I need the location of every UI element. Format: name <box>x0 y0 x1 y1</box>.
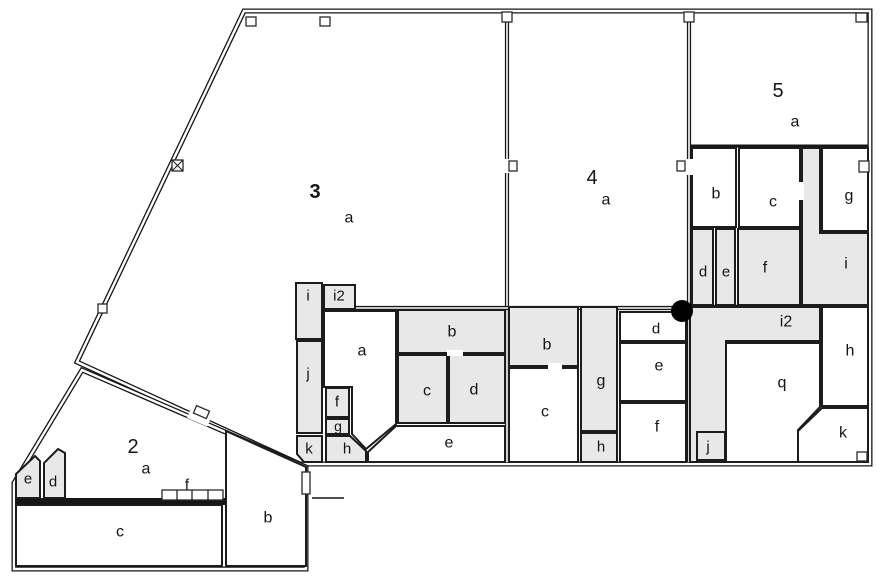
label-room-5j: j <box>705 439 709 456</box>
label-room-3c: c <box>423 383 431 400</box>
label-room-5d: d <box>699 264 707 281</box>
xbox-marker <box>172 160 183 171</box>
label-room-3e: e <box>445 435 454 452</box>
label-room-3g: g <box>334 418 342 434</box>
label-room-4b: b <box>543 337 552 354</box>
section-3-rooms <box>296 283 505 462</box>
window-2b <box>302 472 310 494</box>
label-room-5g: g <box>845 188 854 205</box>
label-section-5-a: a <box>791 114 800 131</box>
door-3b <box>447 350 463 356</box>
window-diagonal <box>98 304 107 313</box>
corner-top-right <box>856 13 867 22</box>
label-room-4h: h <box>597 439 605 456</box>
label-room-5q: q <box>778 375 787 392</box>
room-3j <box>297 341 322 433</box>
label-room-5k: k <box>839 425 848 442</box>
label-room-3a2: a <box>358 343 367 360</box>
label-section-3: 3 <box>309 181 320 203</box>
label-room-2e: e <box>24 471 32 488</box>
junction-top-3-4 <box>502 12 512 22</box>
label-room-5e: e <box>722 264 730 281</box>
room-5j <box>697 432 725 460</box>
door-4b <box>548 363 562 369</box>
label-room-2c: c <box>116 524 124 541</box>
label-room-3i: i <box>306 288 309 305</box>
label-room-4e: e <box>655 358 664 375</box>
room-4f <box>620 403 686 462</box>
room-5f <box>738 229 800 305</box>
corner-bottom-right <box>857 452 867 461</box>
label-room-5f: f <box>763 260 768 277</box>
label-room-4c: c <box>541 404 549 421</box>
label-room-4g: g <box>597 373 606 390</box>
location-marker-dot <box>671 300 693 322</box>
window-right-g <box>859 161 869 172</box>
label-room-5i2: i2 <box>780 314 793 331</box>
label-room-3j: j <box>305 366 309 383</box>
room-4e <box>620 343 686 401</box>
label-section-4: 4 <box>586 167 597 189</box>
door-divider-3-4 <box>502 159 517 173</box>
label-room-4f: f <box>655 419 660 436</box>
label-room-3h: h <box>343 441 351 458</box>
label-room-5i: i <box>844 256 848 273</box>
junction-top-4-5 <box>684 12 694 22</box>
label-room-3i2: i2 <box>333 288 345 305</box>
label-section-5: 5 <box>772 80 783 102</box>
room-5c <box>739 148 800 227</box>
window-top-1 <box>246 17 256 26</box>
window-top-2 <box>320 17 330 26</box>
label-section-4-a: a <box>602 192 611 209</box>
label-room-5h: h <box>846 343 855 360</box>
label-room-3d: d <box>470 382 479 399</box>
label-room-2b: b <box>264 510 273 527</box>
label-section-2: 2 <box>127 436 138 458</box>
label-section-3-a: a <box>345 210 354 227</box>
label-room-2d: d <box>49 474 57 491</box>
label-room-5c: c <box>769 194 777 211</box>
room-4g <box>581 307 617 431</box>
label-room-5b: b <box>712 186 721 203</box>
label-section-2-a: a <box>142 461 151 478</box>
door-5c <box>796 182 804 200</box>
label-room-3b: b <box>448 324 457 341</box>
label-room-4d: d <box>652 321 660 338</box>
stairs-2f <box>162 490 223 500</box>
label-room-3k: k <box>305 441 313 458</box>
floor-plan: 2a3a4a5aedfcbii2ajfgkhbcdebcghdefjqi2hkb… <box>0 0 892 588</box>
